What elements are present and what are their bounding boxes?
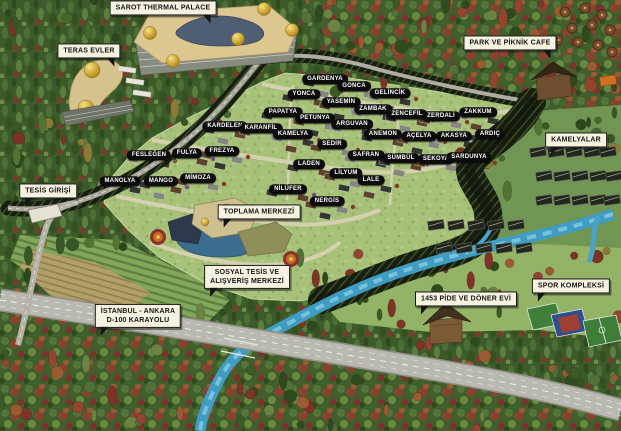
- callout-sarot-thermal-palace: SAROT THERMAL PALACE: [110, 0, 217, 15]
- callout-park-ve-piknik-cafe: PARK VE PİKNİK CAFE: [463, 35, 556, 50]
- tree: [576, 119, 587, 130]
- callout-text: SAROT THERMAL PALACE: [116, 3, 211, 12]
- tree: [487, 10, 497, 20]
- callout-pointer: [538, 293, 546, 302]
- ornamental-tree: [246, 155, 250, 159]
- tree: [315, 5, 323, 23]
- site-label-manolya: MANOLYA: [100, 176, 141, 186]
- callout-text: SOSYAL TESİS VE: [210, 268, 284, 277]
- callout-pointer: [543, 50, 551, 59]
- villa-house: [455, 242, 472, 253]
- tree: [62, 13, 73, 24]
- tree: [395, 40, 408, 53]
- callout-1453-pide-ve-doner-evi: 1453 PİDE VE DÖNER EVİ: [415, 291, 517, 306]
- tree: [307, 321, 317, 331]
- callout-tesis-girisi: TESİS GİRİŞİ: [19, 183, 77, 198]
- villa-house: [515, 242, 532, 253]
- tree: [297, 421, 305, 429]
- tree: [384, 404, 389, 416]
- site-label-zakkum: ZAKKUM: [459, 107, 497, 117]
- tree: [461, 0, 469, 8]
- site-label-lale: LALE: [358, 175, 385, 185]
- villa-house: [589, 170, 606, 181]
- villa-house: [553, 170, 570, 181]
- tree: [146, 381, 157, 392]
- tree: [49, 349, 57, 367]
- tree: [421, 20, 427, 34]
- site-label-sumbul: SÜMBÜL: [382, 153, 419, 163]
- tree: [538, 1, 544, 7]
- tree: [497, 306, 502, 318]
- site-label-laden: LADEN: [293, 159, 325, 169]
- villa-house: [565, 146, 582, 157]
- villa-house: [603, 194, 620, 205]
- callout-pointer: [210, 288, 218, 297]
- ornamental-tree: [493, 161, 497, 165]
- tree: [66, 238, 79, 251]
- site-label-akasya: AKASYA: [436, 131, 472, 141]
- tree: [542, 122, 549, 129]
- callout-text: TERAS EVLER: [63, 46, 114, 55]
- tree: [472, 425, 480, 431]
- site-label-petunya: PETUNYA: [295, 113, 335, 123]
- tree: [56, 234, 65, 254]
- callout-istanbul-ankara-d100-karayolu: İSTANBUL - ANKARAD-100 KARAYOLU: [95, 304, 181, 328]
- tree: [332, 0, 336, 5]
- callout-sosyal-tesis-ve-alisveris-merkezi: SOSYAL TESİS VEALIŞVERİŞ MERKEZİ: [204, 265, 290, 289]
- tree: [377, 309, 382, 321]
- tree: [505, 259, 514, 268]
- tree: [328, 19, 341, 32]
- tree: [84, 381, 95, 392]
- tree: [467, 272, 475, 290]
- tree: [151, 344, 163, 356]
- callout-pointer: [101, 327, 109, 336]
- tree: [237, 382, 243, 396]
- tree: [246, 365, 256, 375]
- tree: [346, 41, 355, 50]
- tree: [358, 36, 364, 49]
- tree: [392, 10, 399, 17]
- tree: [485, 251, 493, 270]
- ornamental-tree: [414, 97, 418, 101]
- tree: [136, 414, 146, 424]
- gold-dome: [84, 62, 100, 78]
- site-label-acelya: AÇELYA: [401, 131, 436, 141]
- site-label-yonca: YONCA: [288, 89, 321, 99]
- callout-text: TESİS GİRİŞİ: [25, 186, 71, 195]
- tree: [416, 340, 426, 350]
- tree: [219, 309, 226, 316]
- tree: [328, 418, 334, 431]
- tree: [490, 72, 498, 89]
- tree: [518, 62, 522, 72]
- tree: [480, 411, 485, 422]
- tree: [72, 401, 84, 413]
- tree: [549, 365, 556, 372]
- site-label-gonca: GONCA: [337, 81, 371, 91]
- tree: [279, 372, 287, 390]
- callout-text: KAMELYALAR: [551, 135, 601, 144]
- tree: [12, 132, 24, 144]
- site-label-sardunya: SARDUNYA: [446, 152, 491, 162]
- villa-house: [475, 242, 492, 253]
- site-label-nergis: NERGİS: [310, 196, 345, 206]
- tree: [503, 181, 512, 201]
- tree: [375, 42, 384, 51]
- villa-house: [535, 194, 552, 205]
- site-label-kamelya: KAMELYA: [273, 129, 313, 139]
- tree: [108, 386, 117, 406]
- tree: [192, 99, 199, 106]
- tree: [570, 252, 578, 260]
- tree: [38, 116, 46, 134]
- tree: [322, 272, 328, 285]
- callout-spor-kompleksi: SPOR KOMPLEKSİ: [532, 278, 610, 293]
- villa-house: [571, 194, 588, 205]
- callout-pointer: [224, 219, 232, 228]
- callout-text: PARK VE PİKNİK CAFE: [469, 38, 550, 47]
- site-label-fulya: FULYA: [172, 148, 202, 158]
- tree: [471, 337, 479, 345]
- tree: [479, 350, 491, 362]
- site-label-anemon: ANEMON: [364, 129, 402, 139]
- villa-house: [553, 194, 570, 205]
- callout-toplama-merkezi: TOPLAMA MERKEZİ: [218, 204, 301, 219]
- tree: [113, 234, 120, 250]
- callout-pointer: [551, 147, 559, 156]
- villa-house: [605, 170, 621, 181]
- villa-house: [571, 170, 588, 181]
- callout-kamelyalar: KAMELYALAR: [545, 132, 607, 147]
- tree: [83, 143, 92, 163]
- tree: [12, 122, 21, 131]
- tree: [413, 392, 422, 401]
- tree: [151, 120, 164, 133]
- site-label-mango: MANGO: [144, 176, 178, 186]
- ornamental-tree: [351, 205, 355, 209]
- tree: [61, 134, 66, 145]
- tree: [82, 355, 90, 373]
- site-label-mimoza: MİMOZA: [180, 173, 216, 183]
- callout-pointer: [107, 58, 115, 67]
- callout-text: 1453 PİDE VE DÖNER EVİ: [421, 294, 511, 303]
- tree: [612, 107, 617, 118]
- site-label-ardic: ARDIÇ: [475, 129, 505, 139]
- tree: [562, 54, 572, 64]
- villa-house: [529, 146, 546, 157]
- tree: [589, 375, 600, 386]
- tree: [594, 117, 601, 124]
- tree: [397, 320, 406, 329]
- tree: [84, 238, 94, 248]
- villa-house: [599, 146, 616, 157]
- tree: [297, 397, 309, 409]
- callout-teras-evler: TERAS EVLER: [57, 43, 120, 58]
- tree: [10, 404, 21, 415]
- tree: [13, 147, 21, 165]
- tree: [264, 405, 274, 415]
- tree: [611, 374, 618, 381]
- callout-pointer: [421, 306, 429, 315]
- tree: [301, 12, 312, 23]
- villa-house: [507, 219, 524, 230]
- ornamental-tree: [465, 120, 469, 124]
- tree: [559, 100, 567, 108]
- ornamental-tree: [395, 184, 399, 188]
- villa-house: [427, 219, 444, 230]
- tree: [3, 349, 10, 356]
- tree: [84, 22, 91, 39]
- tree: [181, 119, 188, 126]
- site-label-safran: SAFRAN: [348, 150, 385, 160]
- tree: [324, 37, 331, 44]
- tree: [388, 299, 396, 317]
- villa-house: [487, 219, 504, 230]
- villa-house: [447, 219, 464, 230]
- tree: [245, 389, 255, 399]
- tree: [323, 9, 332, 18]
- callout-pointer: [202, 15, 210, 24]
- site-label-feslegen: FESLEĞEN: [127, 150, 171, 160]
- villa-house: [495, 242, 512, 253]
- villa-house: [583, 146, 600, 157]
- tree: [477, 60, 486, 69]
- tree: [13, 17, 19, 30]
- tree: [449, 65, 459, 75]
- callout-text: SPOR KOMPLEKSİ: [538, 281, 604, 290]
- tree: [5, 10, 11, 16]
- callout-pointer: [25, 198, 33, 207]
- resort-site-map: GARDENYAGONCAGELİNCİKYONCAYASEMİNZAMBAKZ…: [0, 0, 621, 431]
- callout-text: İSTANBUL - ANKARA: [101, 307, 175, 316]
- tree: [351, 374, 362, 385]
- callout-text: ALIŞVERİŞ MERKEZİ: [210, 277, 284, 286]
- tree: [586, 117, 590, 127]
- ornamental-tree: [222, 182, 226, 186]
- playground: [600, 75, 617, 86]
- site-label-zerdali: ZERDALİ: [422, 111, 460, 121]
- tree: [284, 390, 297, 403]
- site-label-arguvan: ARGUVAN: [331, 119, 373, 129]
- tree: [515, 0, 522, 14]
- tree: [569, 367, 581, 379]
- tree: [237, 415, 244, 431]
- map-illustration: [0, 0, 621, 431]
- ornamental-tree: [211, 157, 215, 161]
- tree: [353, 249, 363, 259]
- callout-text: D-100 KARAYOLU: [101, 316, 175, 325]
- tree: [2, 360, 9, 367]
- tree: [584, 79, 597, 92]
- tree: [499, 155, 505, 161]
- site-label-nilufer: NİLÜFER: [269, 184, 307, 194]
- tree: [112, 34, 120, 42]
- tree: [91, 410, 96, 422]
- callout-text: TOPLAMA MERKEZİ: [224, 207, 295, 216]
- tree: [24, 246, 32, 265]
- villa-house: [467, 219, 484, 230]
- tree: [312, 270, 320, 288]
- tree: [603, 247, 611, 255]
- tree: [499, 8, 508, 28]
- site-label-gelincik: GELİNCİK: [370, 88, 411, 98]
- tree: [171, 99, 179, 118]
- tree: [545, 267, 553, 275]
- tree: [606, 134, 615, 143]
- tree: [124, 370, 133, 379]
- tree: [51, 367, 64, 380]
- site-label-sedir: SEDİR: [317, 139, 347, 149]
- tree: [177, 406, 183, 420]
- villa-house: [535, 170, 552, 181]
- villa-house: [435, 242, 452, 253]
- tree: [78, 139, 85, 146]
- tree: [587, 62, 597, 72]
- tree: [428, 67, 434, 73]
- site-label-frezya: FREZYA: [205, 146, 240, 156]
